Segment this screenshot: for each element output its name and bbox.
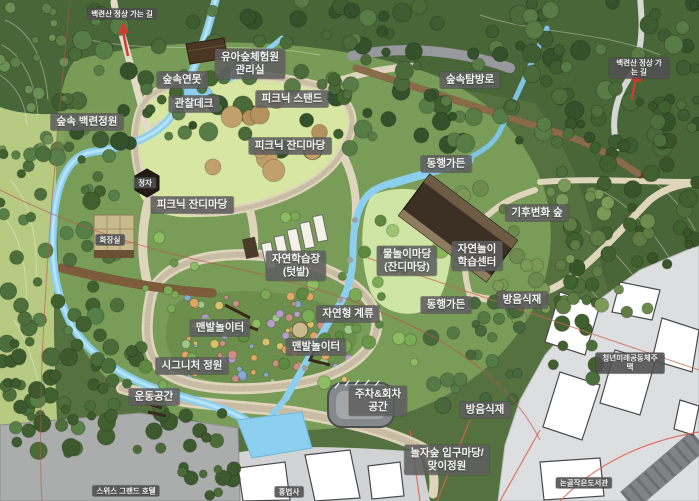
map-label-observation-deck: 관찰데크 [169, 95, 220, 112]
map-label-donghaeng-garden-lower: 동행가든 [421, 296, 472, 313]
map-label-picnic-lawn-lower: 피크닉 잔디마당 [151, 196, 234, 213]
map-label-soundproof-planting-upper: 방음식재 [497, 291, 548, 308]
map-label-youth-community-housing: 청년미래공동체주택 [596, 353, 665, 374]
map-label-restroom: 화장실 [96, 234, 125, 245]
map-label-summit-trail-east: 백련산 정상 가는 길 [609, 58, 669, 79]
map-label-noljasup-entrance-plaza: 놀자숲 입구마당/ 맞이정원 [404, 445, 489, 475]
map-label-climate-change-forest: 기후변화 숲 [505, 204, 568, 221]
map-label-donghaeng-garden-upper: 동행가든 [421, 155, 472, 172]
map-label-forest-trail: 숲속탐방로 [440, 71, 500, 88]
map-label-picnic-lawn-upper: 피크닉 잔디마당 [249, 137, 332, 154]
map-label-hongbeopsa-temple: 홍법사 [275, 486, 304, 497]
map-label-nongol-small-library: 논골작은도서관 [556, 477, 612, 488]
map-label-pavilion: 정자 [134, 177, 156, 188]
map-label-natural-stream: 자연형 계류 [316, 305, 379, 322]
site-plan: 백련산 정상 가는 길유아숲체험원 관리실숲속연못관찰데크피크닉 스탠드숲속 백… [0, 0, 699, 501]
map-label-picnic-stand: 피크닉 스탠드 [256, 90, 329, 107]
map-label-barefoot-playground-west: 맨발놀이터 [190, 319, 250, 336]
map-label-swiss-grand-hotel: 스위스 그랜드 호텔 [92, 485, 159, 496]
map-label-forest-baekryeon-garden: 숲속 백련정원 [51, 113, 124, 130]
map-label-parking-turnaround: 주차&회차 공간 [349, 386, 407, 416]
map-label-soundproof-planting-lower: 방음식재 [460, 401, 511, 418]
map-label-summit-trail-west: 백련산 정상 가는 길 [87, 8, 156, 19]
map-label-exercise-space: 운동공간 [129, 388, 180, 405]
map-label-forest-experience-office: 유아숲체험원 관리실 [215, 49, 285, 79]
map-label-nature-play-center: 자연놀이 학습센터 [452, 241, 503, 271]
map-label-water-play-lawn: 물놀이마당 (잔디마당) [377, 246, 437, 276]
map-label-barefoot-playground-east: 맨발놀이터 [286, 338, 346, 355]
map-labels: 백련산 정상 가는 길유아숲체험원 관리실숲속연못관찰데크피크닉 스탠드숲속 백… [0, 0, 699, 501]
map-label-signature-garden: 시그니처 정원 [156, 357, 229, 374]
map-label-forest-pond: 숲속연못 [157, 71, 208, 88]
map-label-nature-learning-garden: 자연학습장 (텃밭) [266, 251, 326, 281]
